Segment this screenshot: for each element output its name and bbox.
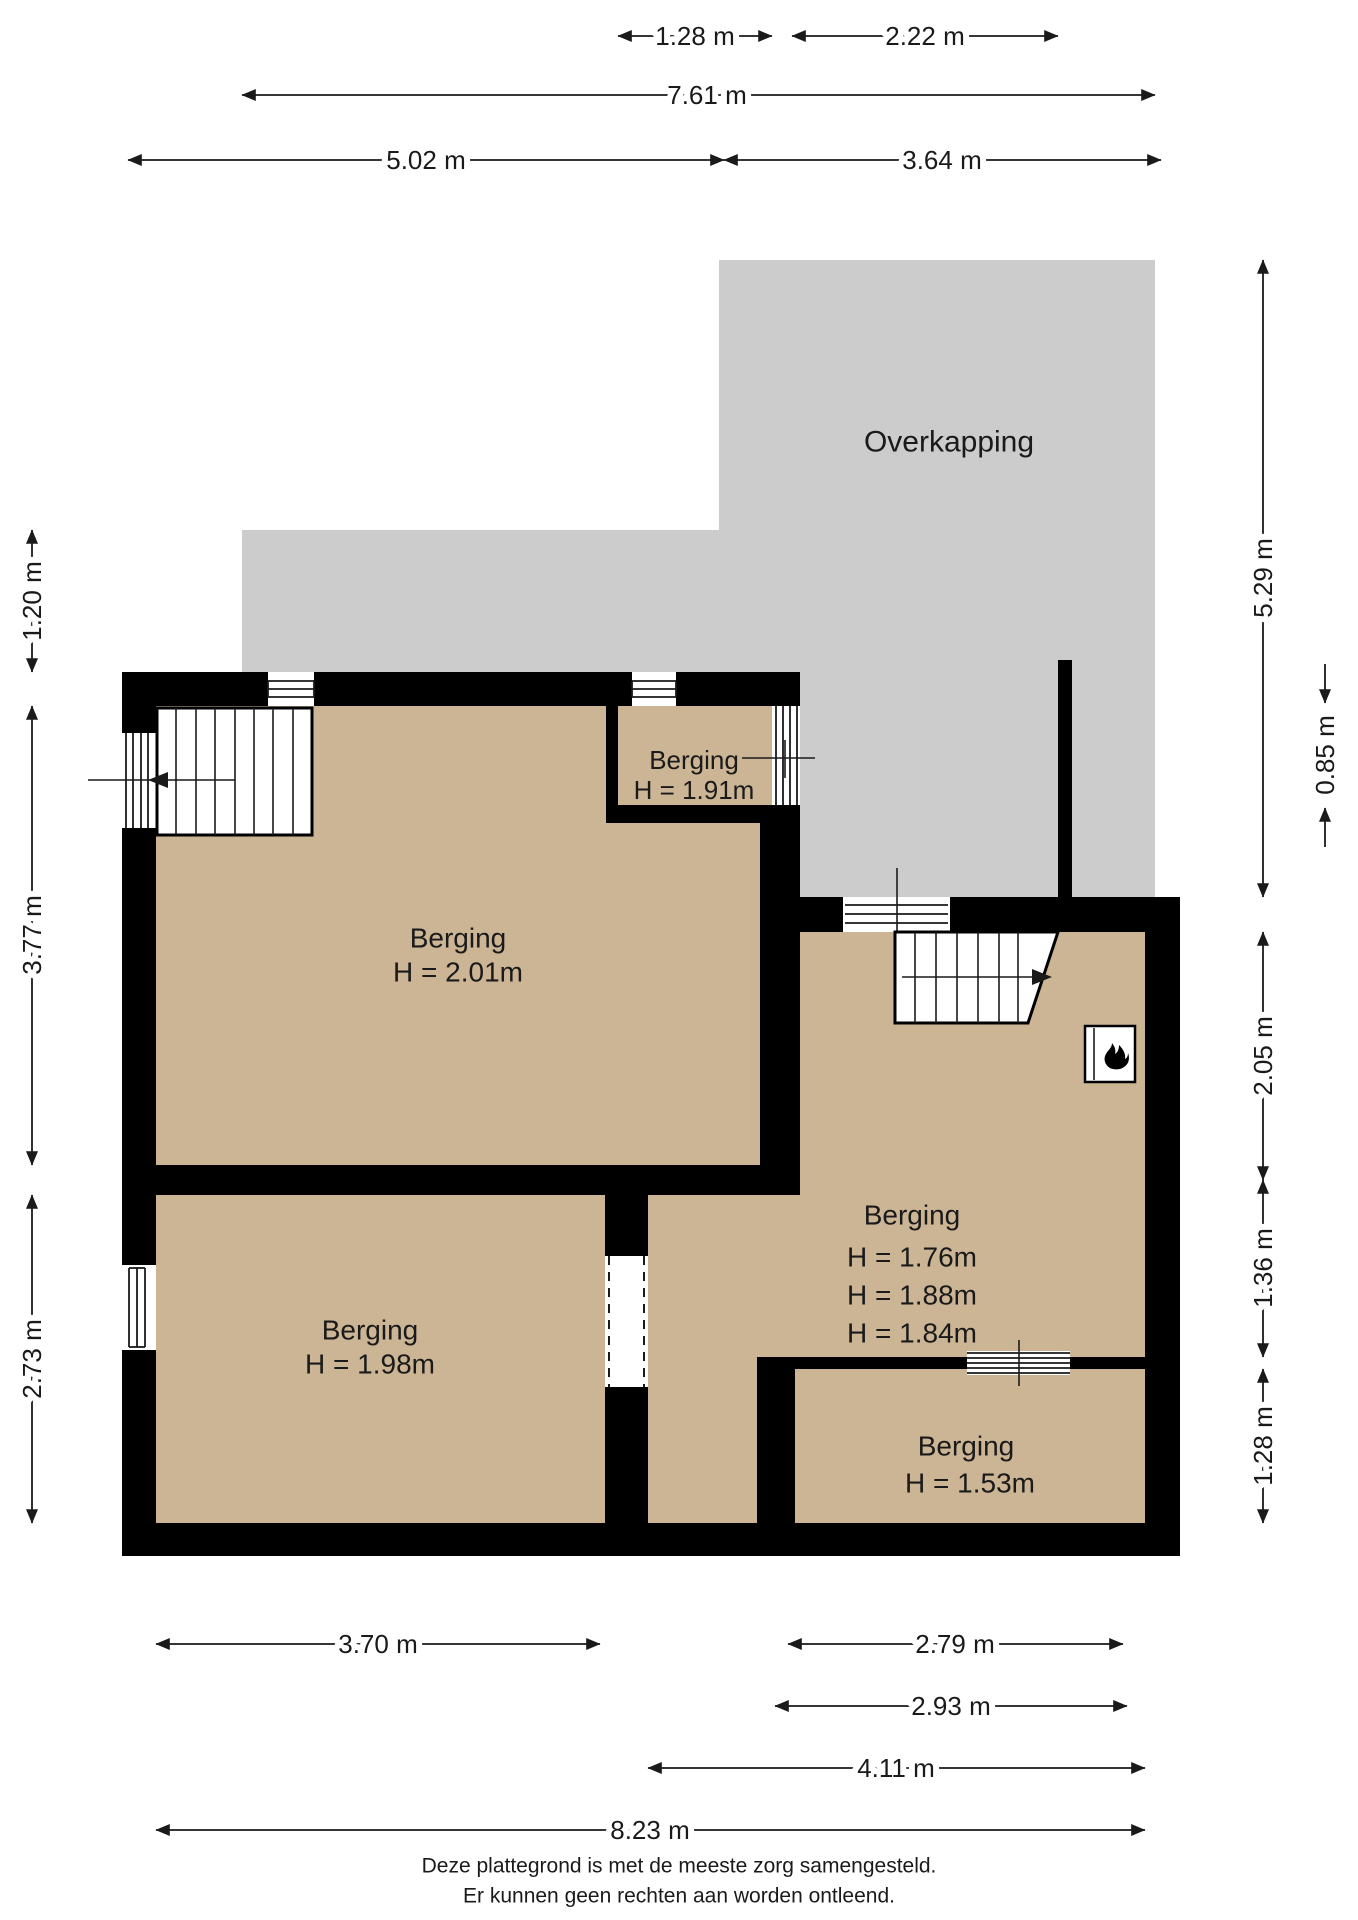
- staircase-main: [88, 708, 312, 835]
- dim-bottom-411: 4.11 m: [648, 1753, 1145, 1783]
- dim-right-128: 1.28 m: [1248, 1369, 1278, 1523]
- overkapping-label: Overkapping: [864, 426, 1034, 459]
- window-left-lower: [122, 1265, 156, 1350]
- dim-label: 2.22 m: [885, 21, 965, 51]
- dim-label: 7.61 m: [667, 80, 747, 110]
- staircase-right: [895, 932, 1058, 1023]
- dim-label: 1.36 m: [1248, 1228, 1278, 1308]
- wall-divider-upper: [760, 823, 800, 1195]
- boiler: [1085, 1026, 1135, 1082]
- dim-label: 1.28 m: [655, 21, 735, 51]
- dim-label: 2.73 m: [17, 1319, 47, 1399]
- dim-right-085: 0.85 m: [1310, 664, 1340, 847]
- dim-top-222: 2.22 m: [792, 21, 1058, 51]
- dim-label: 3.64 m: [902, 145, 982, 175]
- dim-label: 5.29 m: [1248, 538, 1278, 618]
- room-height-1: H = 1.76m: [847, 1242, 977, 1273]
- dim-bottom-370: 3.70 m: [156, 1629, 600, 1659]
- wall-berging153-top-right: [1070, 1357, 1145, 1369]
- dim-label: 3.70 m: [338, 1629, 418, 1659]
- dim-left-120: 1.20 m: [17, 530, 47, 672]
- room-height-2: H = 1.88m: [847, 1280, 977, 1311]
- footer-disclaimer-line2: Er kunnen geen rechten aan worden ontlee…: [463, 1885, 895, 1908]
- room-height: H = 1.53m: [905, 1468, 1035, 1499]
- wall-stub-overkapping: [1058, 660, 1072, 897]
- dim-label: 3.77 m: [17, 895, 47, 975]
- dim-top-502: 5.02 m: [128, 145, 724, 175]
- room-name: Berging: [410, 923, 507, 954]
- dim-label: 5.02 m: [386, 145, 466, 175]
- window-berging191-east: [772, 706, 800, 805]
- door-berging198: [605, 1256, 648, 1387]
- dim-right-529: 5.29 m: [1248, 260, 1278, 897]
- dim-label: 2.79 m: [915, 1629, 995, 1659]
- room-name: Berging: [322, 1315, 419, 1346]
- dim-top-128: 1.28 m: [618, 21, 772, 51]
- floorplan-page: Berging H = 2.01m Berging H = 1.91m Berg…: [0, 0, 1358, 1920]
- wall-right: [1145, 897, 1180, 1556]
- dim-top-761: 7.61 m: [242, 80, 1155, 110]
- window-top-middle: [632, 672, 676, 706]
- dim-left-377: 3.77 m: [17, 706, 47, 1165]
- room-height: H = 2.01m: [393, 957, 523, 988]
- dim-label: 0.85 m: [1310, 715, 1340, 795]
- wall-berging153-west: [757, 1357, 795, 1523]
- dim-label: 4.11 m: [857, 1753, 935, 1783]
- dim-label: 1.20 m: [17, 561, 47, 641]
- dim-label: 2.93 m: [911, 1691, 991, 1721]
- dim-right-205: 2.05 m: [1248, 932, 1278, 1180]
- dim-bottom-279: 2.79 m: [788, 1629, 1123, 1659]
- wall-top: [122, 672, 800, 706]
- room-height: H = 1.91m: [634, 775, 755, 805]
- dim-bottom-823: 8.23 m: [156, 1815, 1145, 1845]
- wall-middle: [122, 1165, 800, 1195]
- room-height: H = 1.98m: [305, 1349, 435, 1380]
- dim-left-273: 2.73 m: [17, 1195, 47, 1523]
- room-name: Berging: [918, 1431, 1015, 1462]
- wall-berging191-south: [606, 805, 800, 823]
- room-name: Berging: [649, 745, 739, 775]
- wall-berging153-top-left: [757, 1357, 967, 1369]
- dim-top-364: 3.64 m: [724, 145, 1161, 175]
- room-height-3: H = 1.84m: [847, 1318, 977, 1349]
- dim-label: 8.23 m: [610, 1815, 690, 1845]
- floorplan-drawing: Berging H = 2.01m Berging H = 1.91m Berg…: [0, 0, 1358, 1920]
- dim-label: 2.05 m: [1248, 1016, 1278, 1096]
- wall-bottom: [122, 1523, 1180, 1556]
- dim-label: 1.28 m: [1248, 1406, 1278, 1486]
- dim-right-136: 1.36 m: [1248, 1180, 1278, 1357]
- footer-disclaimer-line1: Deze plattegrond is met de meeste zorg s…: [422, 1855, 937, 1878]
- dim-bottom-293: 2.93 m: [775, 1691, 1127, 1721]
- window-top-left: [268, 672, 314, 706]
- wall-berging191-west: [606, 706, 618, 805]
- room-name: Berging: [864, 1200, 961, 1231]
